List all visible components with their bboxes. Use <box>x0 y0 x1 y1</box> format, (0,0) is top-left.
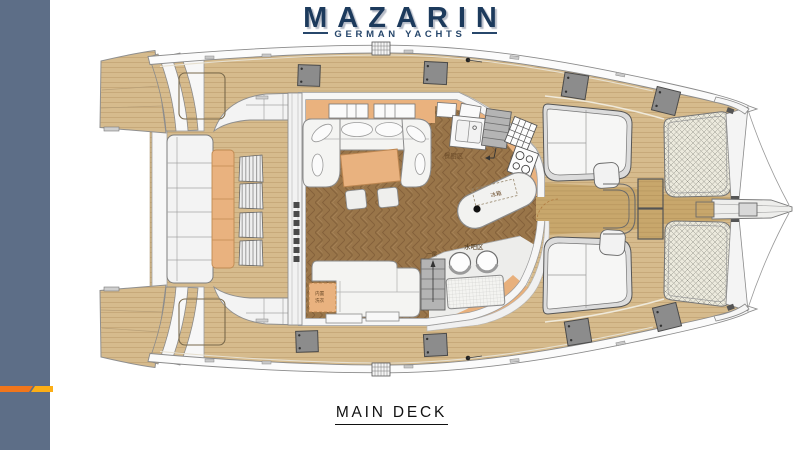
svg-text:一层: 一层 <box>427 252 437 258</box>
svg-text:餐厨区: 餐厨区 <box>444 151 464 160</box>
svg-text:洗衣: 洗衣 <box>315 297 325 304</box>
svg-text:水吧区: 水吧区 <box>464 242 484 251</box>
svg-text:内置: 内置 <box>315 290 325 297</box>
